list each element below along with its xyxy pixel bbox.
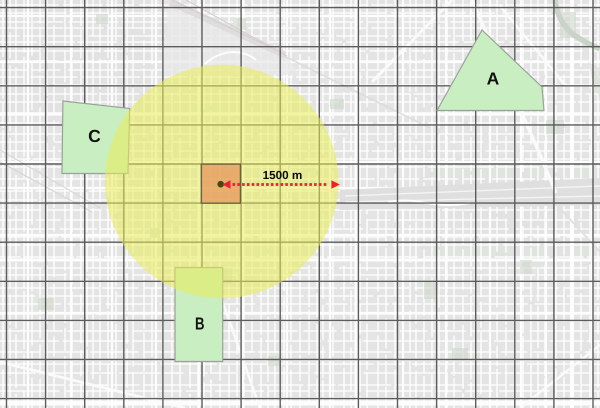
svg-text:A: A bbox=[487, 69, 500, 89]
svg-text:C: C bbox=[88, 126, 101, 146]
svg-text:B: B bbox=[195, 314, 205, 334]
svg-text:1500 m: 1500 m bbox=[263, 169, 303, 182]
